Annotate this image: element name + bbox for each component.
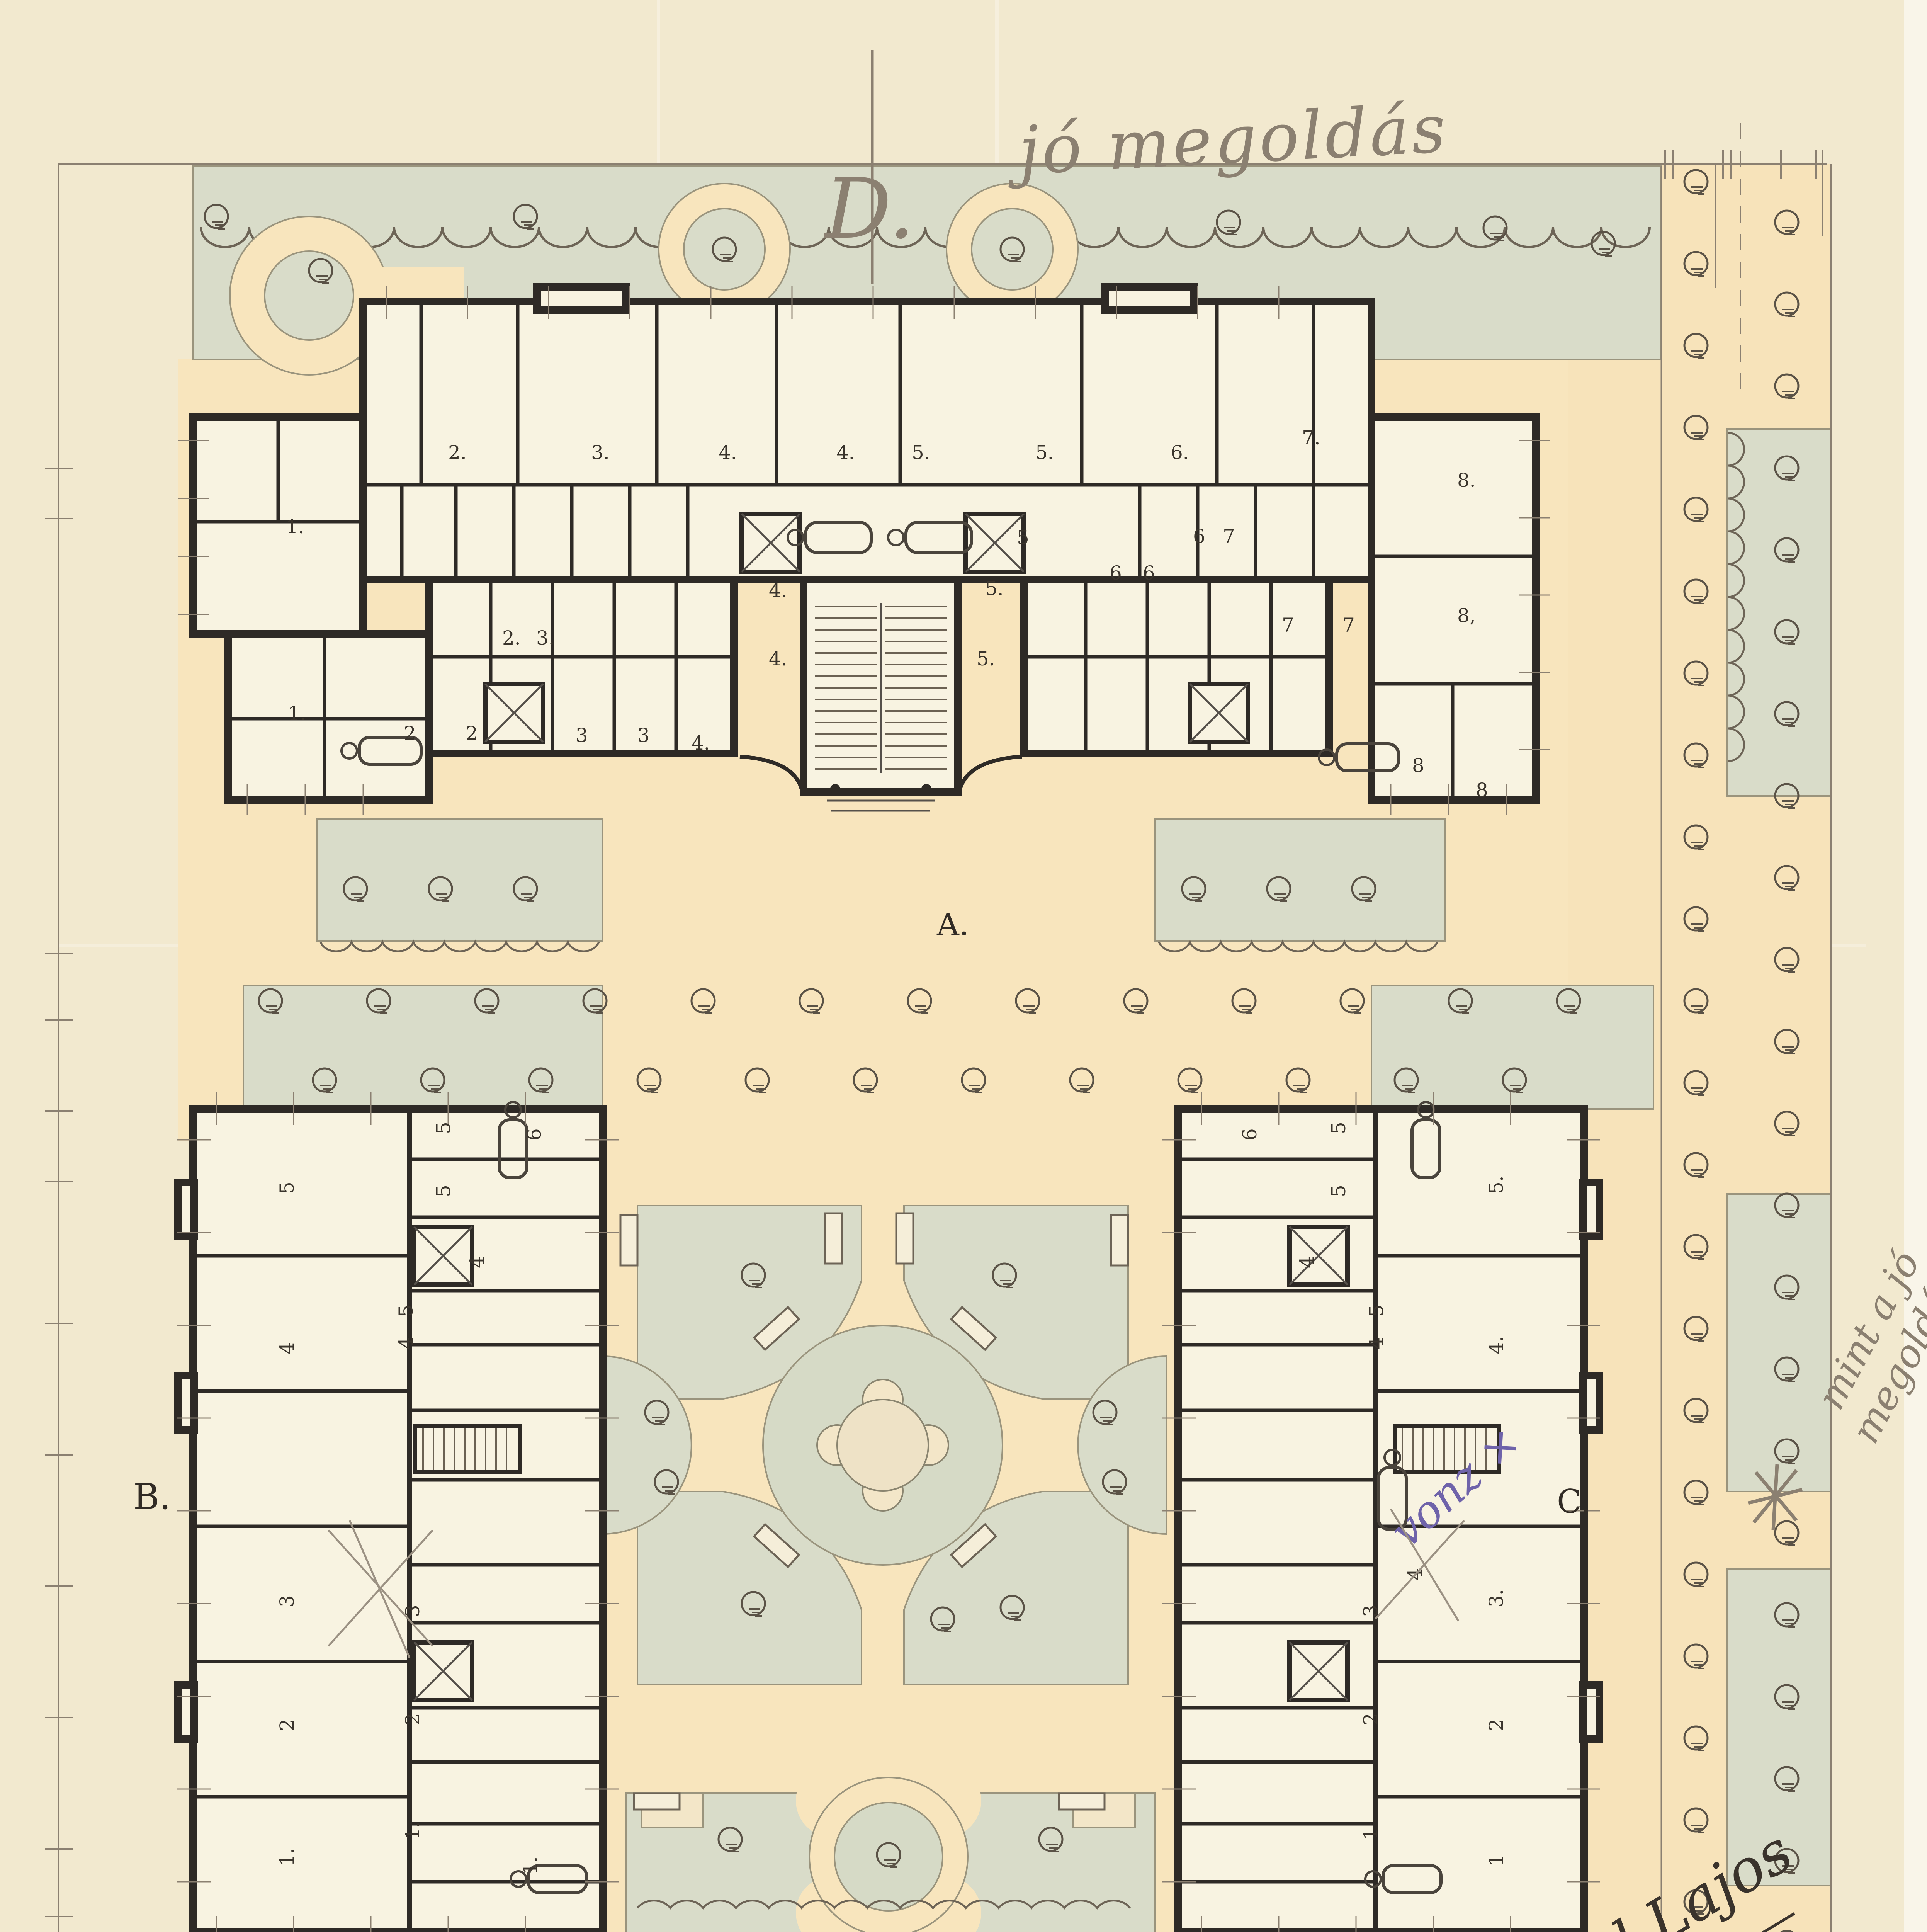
room-number: 3. [591, 441, 610, 464]
room-number: 7. [1302, 427, 1320, 449]
room-number: 8 [1476, 779, 1488, 801]
avenue-lawn-right [1371, 985, 1653, 1109]
building-block [537, 287, 626, 310]
room-number: 6. [1171, 441, 1189, 464]
room-number: 7 [1223, 525, 1235, 548]
room-number: 4. [769, 648, 787, 670]
room-number: 3 [276, 1595, 298, 1607]
room-number: 5 [1365, 1304, 1388, 1317]
building-block [178, 1685, 194, 1739]
building-a-label: A. [936, 906, 969, 942]
room-number: 4 [466, 1256, 488, 1268]
building-block [193, 1109, 603, 1932]
room-number: 8. [1457, 469, 1476, 492]
room-number: 4 [1365, 1337, 1388, 1349]
room-number: 8, [1457, 604, 1476, 627]
room-number: 4. [1485, 1336, 1507, 1354]
room-number: 7 [1342, 614, 1355, 636]
room-number: 5 [1017, 526, 1029, 549]
room-number: 1. [519, 1856, 542, 1875]
front-garden-right [1155, 819, 1445, 941]
building-block [1583, 1685, 1599, 1739]
garden-bench [896, 1213, 913, 1264]
room-number: 8 [1412, 754, 1424, 777]
room-number: 4 [1296, 1256, 1318, 1268]
room-number: 5 [1327, 1122, 1350, 1134]
room-number: 4. [836, 441, 855, 464]
paper-right-margin [1904, 0, 1927, 1932]
room-number: 3 [637, 724, 650, 747]
garden-bench [620, 1215, 637, 1265]
garden-bench [1111, 1215, 1128, 1265]
room-number: 4 [395, 1337, 417, 1349]
room-number: 1. [276, 1848, 298, 1866]
room-number: 2. [448, 441, 467, 464]
room-number: 2 [466, 722, 478, 745]
fountain-basin [837, 1400, 928, 1491]
room-number: 5 [432, 1122, 455, 1134]
building-block [178, 1182, 194, 1236]
architectural-plan-sheet: 1.2.3.4.4.5.5.6.7.8.1.222.3.334.4.4.5.5.… [0, 0, 1927, 1932]
room-number: 2 [404, 722, 416, 745]
garden-loop-island [265, 251, 353, 340]
round-garden-island-2 [972, 209, 1053, 290]
right-lawn-panel-2 [1727, 1194, 1831, 1492]
room-number: 2 [1359, 1713, 1382, 1725]
room-number: 4. [719, 441, 737, 464]
building-block [1583, 1376, 1599, 1430]
garden-bench [1059, 1793, 1105, 1810]
room-number: 3. [536, 627, 555, 649]
plan-variant-mark: D. [823, 160, 915, 257]
room-number: 6 [523, 1128, 545, 1141]
room-number: 2 [401, 1713, 424, 1725]
room-number: 3. [1485, 1589, 1507, 1607]
room-number: 6 [1143, 562, 1155, 584]
building-b [177, 1092, 619, 1932]
garden-bench [825, 1213, 842, 1264]
room-number: 5. [1485, 1175, 1507, 1194]
building-block [1583, 1182, 1599, 1236]
room-number: 1 [1485, 1854, 1507, 1866]
room-number: 2 [1485, 1719, 1507, 1731]
room-number: 4 [276, 1342, 298, 1354]
room-number: 5. [1035, 441, 1054, 464]
room-number: 5. [912, 441, 930, 464]
right-walkway-top [1661, 164, 1831, 361]
room-number: 5. [977, 648, 995, 670]
porch-column [830, 784, 840, 794]
room-number: 4. [769, 579, 787, 602]
site-plan-drawing: 1.2.3.4.4.5.5.6.7.8.1.222.3.334.4.4.5.5.… [0, 0, 1927, 1932]
room-number: 5 [276, 1182, 298, 1194]
main-staircase [415, 1426, 520, 1472]
building-block [228, 634, 429, 800]
round-garden-island-1 [684, 209, 765, 290]
room-number: 1 [1359, 1828, 1382, 1840]
room-number: 2. [502, 627, 521, 649]
right-lawn-panel-1 [1727, 429, 1831, 796]
room-number: 4. [692, 732, 710, 754]
avenue-lawn-left [243, 985, 603, 1109]
room-number: 5. [985, 577, 1004, 600]
porch-column [921, 784, 931, 794]
room-number: 5 [395, 1304, 417, 1317]
front-garden-left [317, 819, 603, 941]
building-c-label: C. [1557, 1483, 1591, 1520]
room-number: 5 [432, 1185, 455, 1197]
building-block [1024, 580, 1329, 753]
room-number: 7 [1282, 614, 1294, 636]
room-number: 3 [576, 724, 588, 747]
building-block [178, 1376, 194, 1430]
building-c [1162, 1092, 1600, 1932]
building-b-label: B. [133, 1476, 171, 1517]
building-block [1178, 1109, 1584, 1932]
bottom-fountain-island [834, 1803, 943, 1911]
room-number: 1. [401, 1821, 424, 1840]
garden-bench [634, 1793, 680, 1810]
building-block [1105, 287, 1194, 310]
room-number: 6 [1193, 525, 1205, 548]
room-number: 2 [276, 1719, 298, 1731]
room-number: 1. [286, 515, 304, 538]
room-number: 1. [288, 702, 306, 724]
room-number: 6 [1239, 1128, 1261, 1141]
room-number: 6 [1110, 562, 1122, 584]
room-number: 5 [1327, 1185, 1350, 1197]
